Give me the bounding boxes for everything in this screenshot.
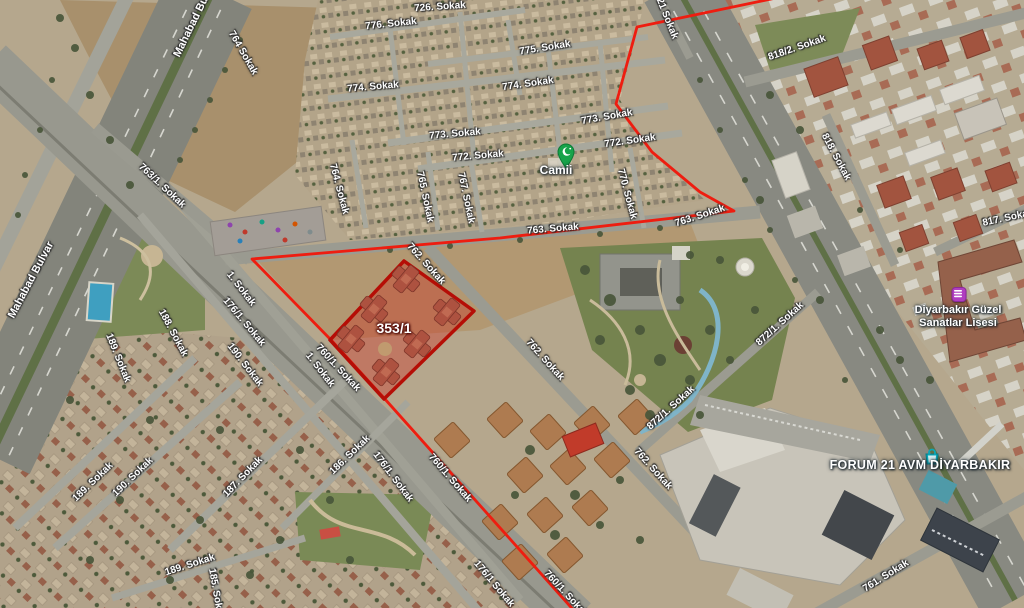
mall-label: FORUM 21 AVM DİYARBAKIR — [830, 458, 1011, 472]
satellite-base-layer — [0, 0, 1024, 608]
mall-label-wrap: FORUM 21 AVM DİYARBAKIR — [830, 456, 1011, 474]
school-label-wrap: Diyarbakır Güzel Sanatlar Lisesi — [915, 304, 1002, 330]
parcel-label: 353/1 — [376, 320, 411, 336]
mosque-label: Camii — [540, 163, 573, 177]
mosque-label-wrap: Camii — [540, 161, 573, 179]
school-label-line2: Sanatlar Lisesi — [915, 317, 1002, 330]
satellite-map: Mahabad BuMahabad Bulvar764 Sokak763/1. … — [0, 0, 1024, 608]
school-icon — [952, 287, 967, 302]
school-label-line1: Diyarbakır Güzel — [915, 304, 1002, 317]
